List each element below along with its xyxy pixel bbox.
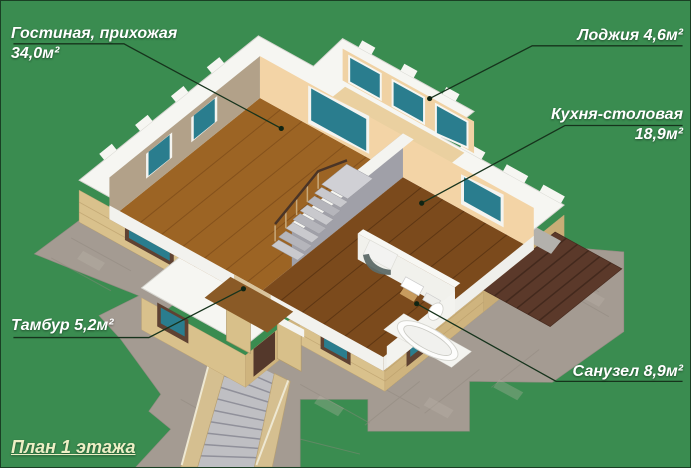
callout-kitchen-area: 18,9м² xyxy=(551,125,683,145)
callout-kitchen: Кухня-столовая 18,9м² xyxy=(551,105,683,145)
callout-vestibule-text: Тамбур 5,2м² xyxy=(11,316,114,336)
callout-loggia-text: Лоджия 4,6м² xyxy=(578,26,683,46)
callout-living-room: Гостиная, прихожая 34,0м² xyxy=(11,24,177,64)
callout-living-room-area: 34,0м² xyxy=(11,44,177,64)
plan-title: План 1 этажа xyxy=(11,437,135,458)
callout-loggia: Лоджия 4,6м² xyxy=(578,26,683,46)
leader-loggia xyxy=(430,46,683,99)
callout-living-room-name: Гостиная, прихожая xyxy=(11,24,177,44)
callout-vestibule: Тамбур 5,2м² xyxy=(11,316,114,336)
floorplan-render: Гостиная, прихожая 34,0м² Лоджия 4,6м² К… xyxy=(0,0,691,468)
floorplan-scene xyxy=(1,1,690,467)
callout-bathroom: Санузел 8,9м² xyxy=(573,362,683,382)
callout-bathroom-text: Санузел 8,9м² xyxy=(573,362,683,382)
callout-kitchen-name: Кухня-столовая xyxy=(551,105,683,125)
